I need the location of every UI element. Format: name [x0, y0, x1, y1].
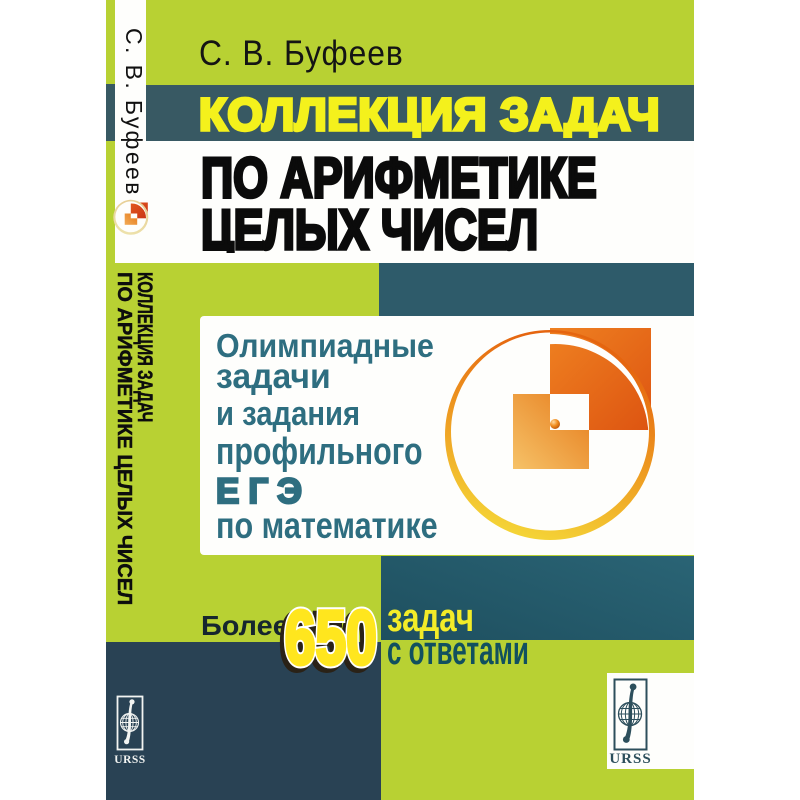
svg-text:URSS: URSS [609, 751, 651, 766]
svg-text:650: 650 [285, 597, 377, 682]
svg-text:URSS: URSS [114, 754, 145, 766]
